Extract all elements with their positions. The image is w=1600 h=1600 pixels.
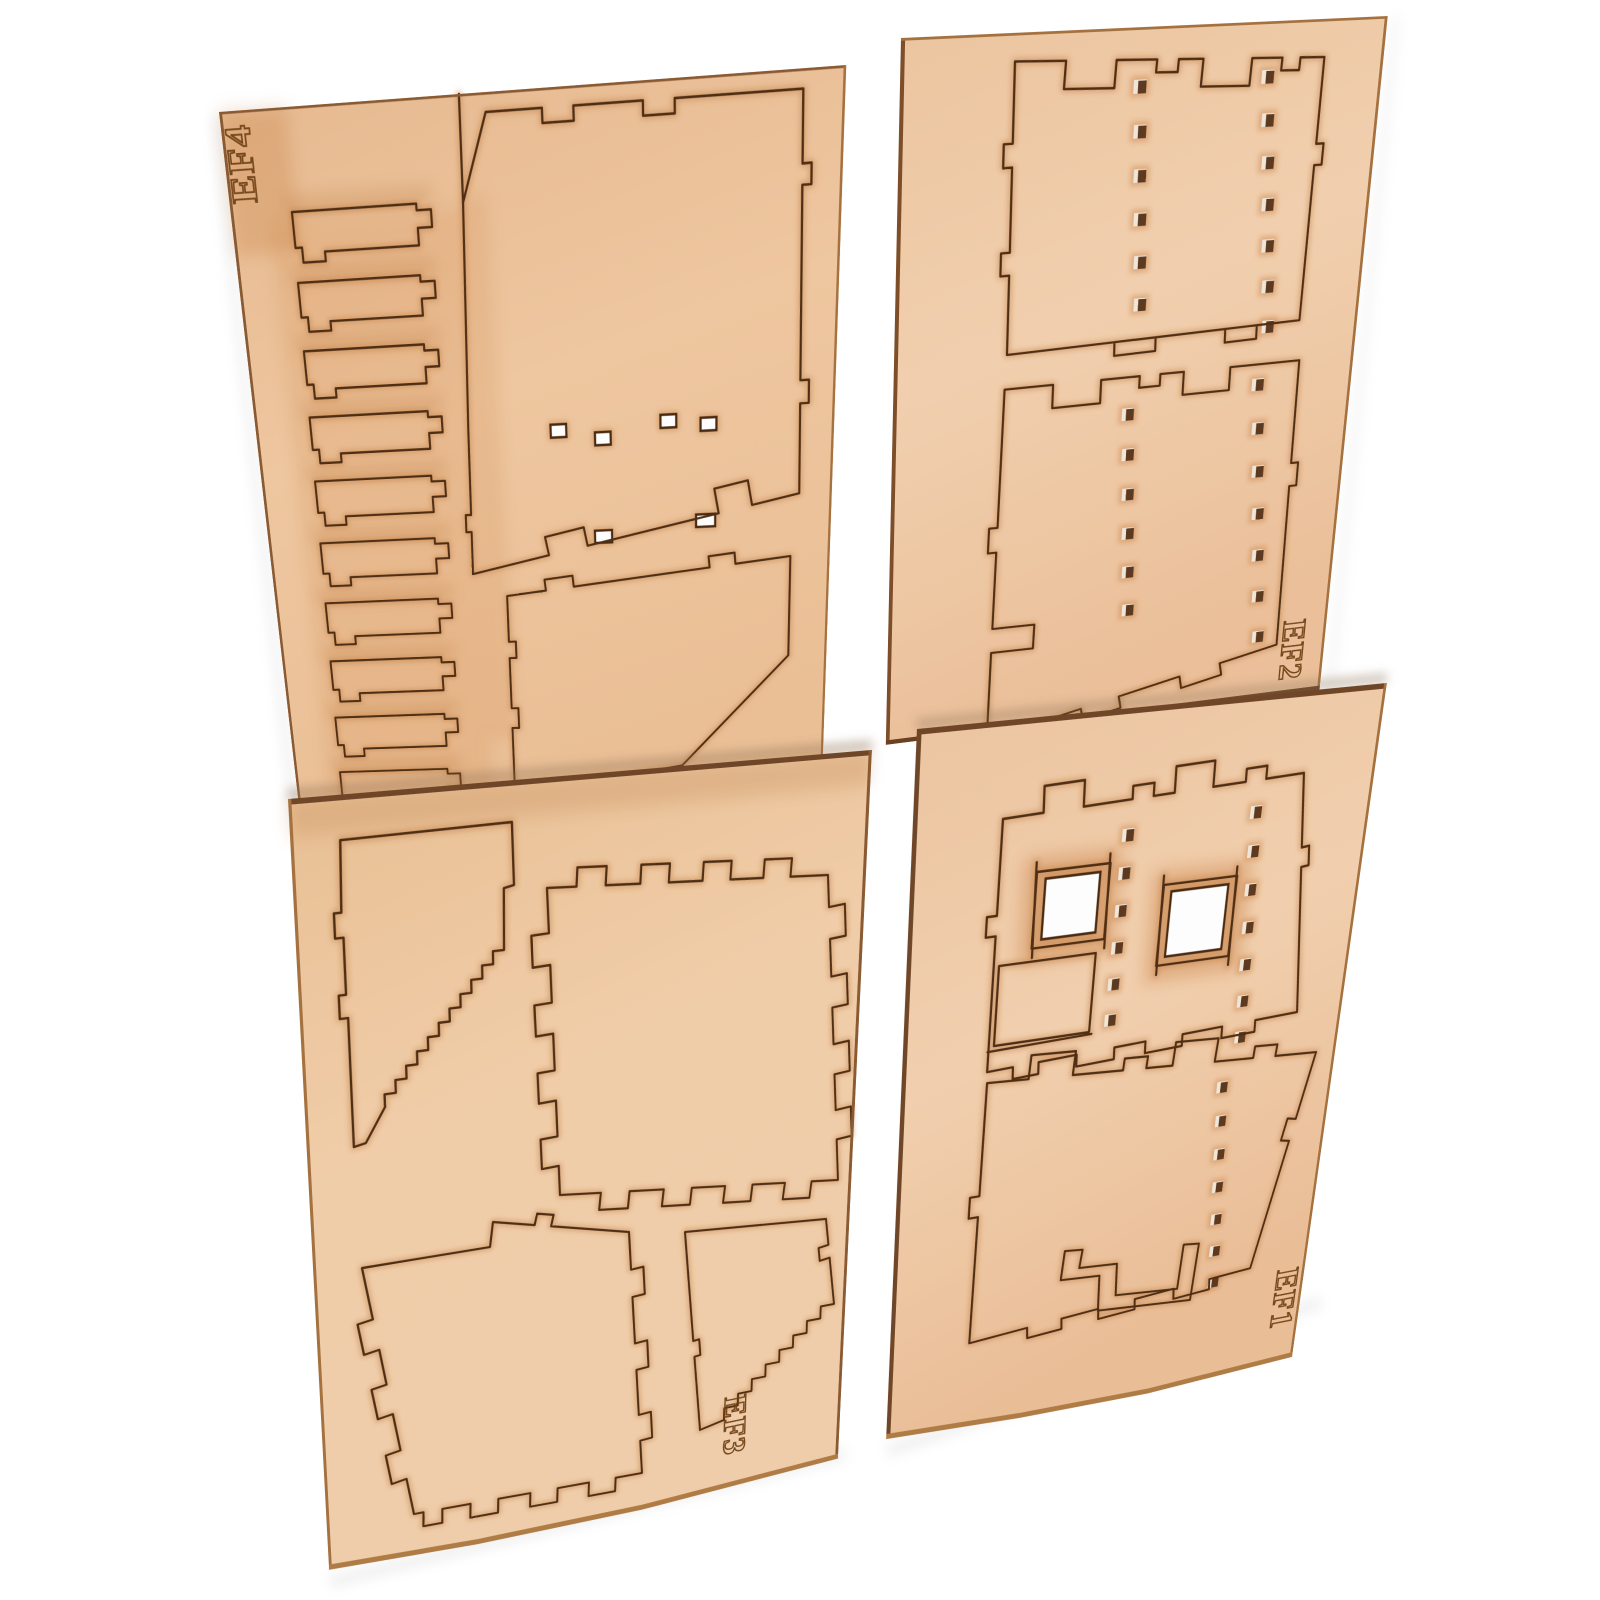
svg-text:EF3: EF3: [716, 1392, 752, 1458]
